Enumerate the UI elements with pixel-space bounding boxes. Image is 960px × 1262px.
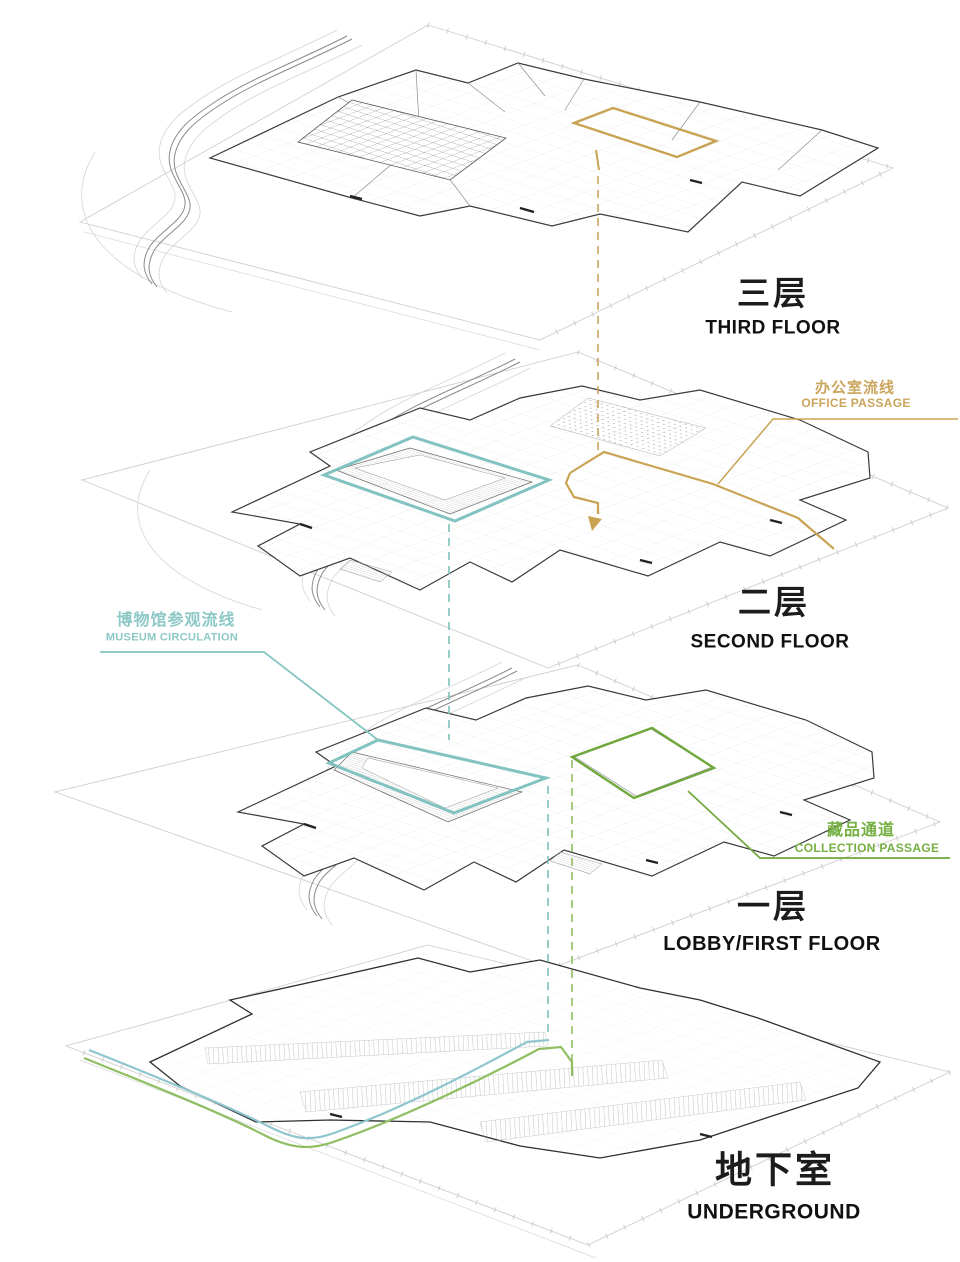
- collection-passage-label-en: COLLECTION PASSAGE: [795, 842, 940, 854]
- floor-plate-first: [55, 652, 950, 968]
- office-passage-label-en: OFFICE PASSAGE: [801, 397, 910, 409]
- floor-label-first-zh: 一层: [737, 890, 809, 923]
- floor-label-second-en: SECOND FLOOR: [690, 633, 849, 652]
- building-plan-first: [238, 686, 874, 890]
- floor-label-underground-zh: 地下室: [715, 1152, 835, 1189]
- terrain-contour: [82, 152, 232, 312]
- collection-passage-label-zh: 藏品通道: [827, 823, 895, 839]
- site-offset-line: [84, 232, 540, 350]
- floor-label-third-zh: 三层: [737, 277, 809, 310]
- building-plan-third: [210, 63, 878, 232]
- floor-label-first-en: LOBBY/FIRST FLOOR: [663, 934, 880, 954]
- museum-circulation-label-zh: 博物馆参观流线: [116, 613, 235, 629]
- building-plan-underground: [150, 958, 880, 1158]
- terrain-contour: [138, 470, 262, 610]
- floor-label-third-en: THIRD FLOOR: [705, 319, 840, 338]
- floor-label-underground-en: UNDERGROUND: [687, 1202, 861, 1223]
- museum-circulation-label-en: MUSEUM CIRCULATION: [106, 633, 238, 644]
- museum-circulation-leader: [100, 652, 378, 740]
- office-passage-label-zh: 办公室流线: [815, 381, 895, 396]
- floor-label-second-zh: 二层: [738, 586, 810, 619]
- exploded-axon-diagram: 三层 THIRD FLOOR 办公室流线 OFFICE PASSAGE 二层 S…: [0, 0, 960, 1262]
